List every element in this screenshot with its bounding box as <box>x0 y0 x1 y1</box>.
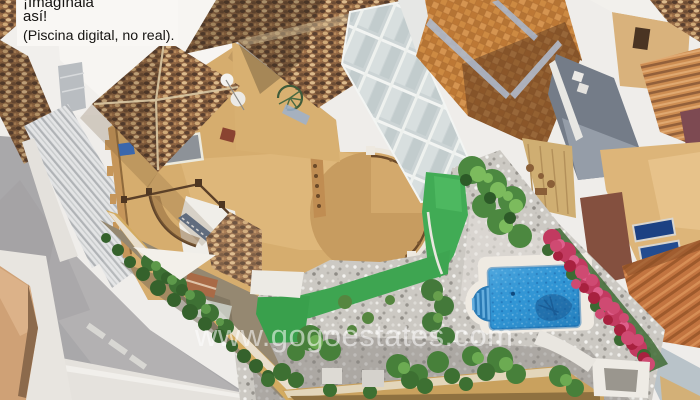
svg-text:así!: así! <box>23 8 47 25</box>
svg-text:(Piscina digital, no real).: (Piscina digital, no real). <box>23 28 174 44</box>
svg-text:www.gogoestates.com: www.gogoestates.com <box>194 318 513 353</box>
